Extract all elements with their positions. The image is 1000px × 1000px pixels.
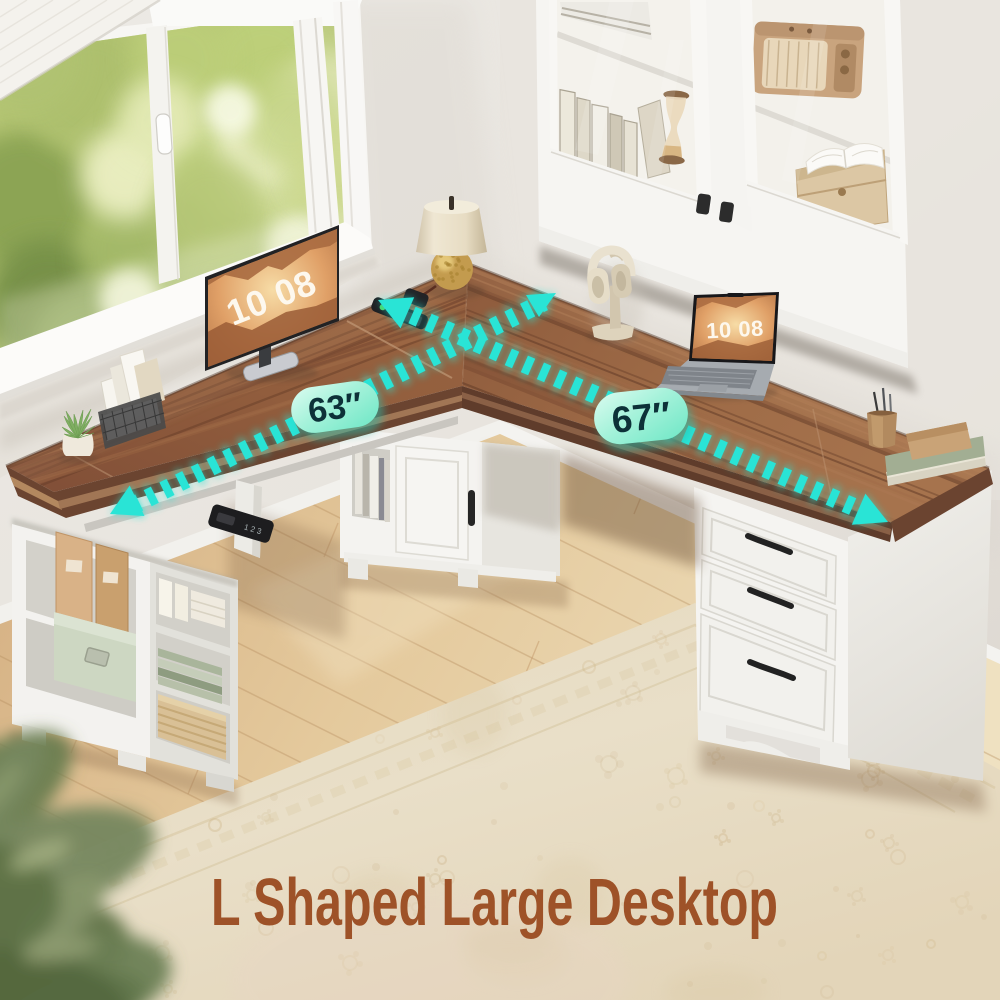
svg-text:63″: 63″: [306, 385, 365, 430]
svg-text:L Shaped Large Desktop: L Shaped Large Desktop: [211, 865, 778, 940]
svg-text:10 08: 10 08: [706, 315, 765, 343]
svg-text:67″: 67″: [610, 394, 673, 441]
